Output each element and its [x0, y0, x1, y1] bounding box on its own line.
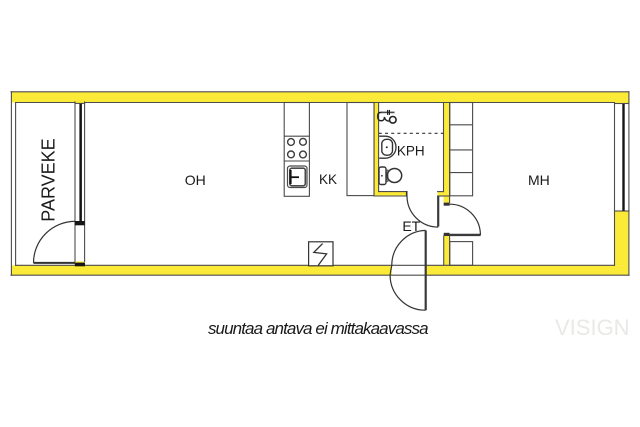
svg-text:MH: MH	[528, 172, 550, 188]
svg-text:VISIGN: VISIGN	[555, 315, 630, 340]
svg-text:ET: ET	[402, 218, 420, 234]
svg-text:suuntaa antava ei mittakaavass: suuntaa antava ei mittakaavassa	[208, 319, 428, 338]
svg-text:OH: OH	[185, 172, 206, 188]
svg-text:PARVEKE: PARVEKE	[39, 138, 59, 221]
svg-text:KPH: KPH	[397, 143, 425, 158]
svg-text:KK: KK	[319, 172, 337, 187]
